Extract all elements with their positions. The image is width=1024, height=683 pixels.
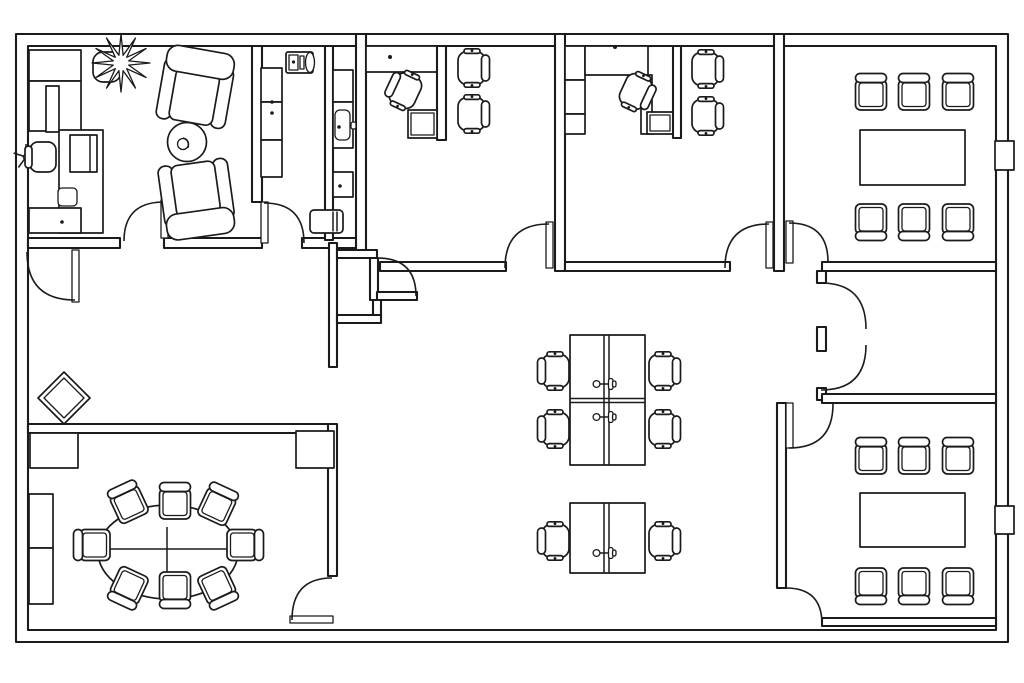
wall-office2-bottom <box>565 262 730 271</box>
reception-counter <box>46 86 59 132</box>
door-vestibule-upper <box>821 283 866 329</box>
meeting-chair <box>943 568 974 605</box>
wall-office1-office2-divider <box>555 34 565 271</box>
door-meeting-br-bottom <box>786 588 822 624</box>
room-kitchenette <box>261 52 356 233</box>
wall-core-stub-h2 <box>377 292 417 300</box>
task-chair <box>649 352 681 390</box>
task-chair <box>649 410 681 448</box>
meeting-table <box>860 493 965 547</box>
wall-office2-meeting-divider <box>774 34 784 271</box>
cabinet <box>296 431 334 468</box>
wall-office1-left <box>356 34 366 258</box>
cabinet <box>565 80 585 114</box>
meeting-chair <box>899 74 930 111</box>
task-chair <box>538 410 570 448</box>
meeting-chair <box>899 204 930 241</box>
wall-core-vertical <box>329 243 337 367</box>
conference-chair <box>74 530 111 561</box>
cabinet <box>29 548 53 604</box>
conference-chair <box>160 572 191 609</box>
wall-vestibule-stub-mid <box>817 327 826 351</box>
meeting-chair <box>856 568 887 605</box>
base-cabinet <box>333 172 353 197</box>
cabinet <box>29 494 53 548</box>
wall-meeting-tr-bottom <box>822 262 996 271</box>
wall-niche <box>995 506 1014 534</box>
cabinet <box>30 433 78 468</box>
lounge-armchair <box>155 43 237 129</box>
meeting-chair <box>856 204 887 241</box>
visitor-chair <box>692 50 724 88</box>
meeting-chair <box>943 74 974 111</box>
meeting-chair <box>856 438 887 475</box>
visitor-chair <box>458 95 490 133</box>
cabinet <box>29 208 81 233</box>
door-meeting-tr <box>786 221 828 263</box>
cabinet <box>565 114 585 134</box>
room-conference-bottom-left <box>29 431 334 611</box>
wall-cabinet <box>261 140 282 177</box>
desk-top <box>585 46 648 75</box>
door-office1 <box>505 222 553 268</box>
door-kitchen <box>261 202 304 243</box>
door-meeting-br-top <box>786 403 833 448</box>
office-partition <box>673 46 681 138</box>
wall-meeting-br-top <box>822 394 996 403</box>
task-chair <box>538 522 570 560</box>
cabinet <box>29 50 81 81</box>
task-chair <box>538 352 570 390</box>
built-in-counter <box>366 46 437 72</box>
floor-plan-page: Office floor plan <box>0 0 1024 683</box>
desk-return <box>647 112 673 134</box>
wall-cabinet <box>261 102 282 140</box>
wall-reception-bottom-left <box>28 238 120 248</box>
desk-item <box>58 188 77 206</box>
wall-conference-bl-top <box>28 424 336 433</box>
conference-chair <box>160 483 191 520</box>
diamond-element <box>38 372 90 424</box>
room-meeting-bottom-right <box>856 438 1015 605</box>
wall-vestibule-stub-top <box>817 271 826 283</box>
desk-return <box>408 110 437 138</box>
floor-plan-drawing <box>0 0 1024 683</box>
wall-meeting-br-bottom <box>822 618 996 626</box>
cabinet <box>565 46 585 80</box>
door-conference-bl <box>290 578 333 623</box>
wall-niche <box>995 141 1014 170</box>
meeting-chair <box>943 438 974 475</box>
meeting-chair <box>899 568 930 605</box>
visitor-chair <box>458 49 490 87</box>
waste-bin <box>310 210 343 233</box>
door-vestibule-lower <box>821 345 866 390</box>
coffee-machine <box>286 52 315 73</box>
wall-open-area-right <box>777 403 786 588</box>
door-office2 <box>725 222 773 268</box>
wall-office1-bottom <box>380 262 506 271</box>
conference-chair <box>227 530 264 561</box>
task-chair <box>649 522 681 560</box>
meeting-chair <box>856 74 887 111</box>
meeting-chair <box>943 204 974 241</box>
wall-core-stub-h1 <box>337 250 377 258</box>
room-private-office-2 <box>565 45 724 138</box>
room-reception-office <box>14 34 237 242</box>
wall-cabinet <box>261 68 282 102</box>
door-reception <box>124 200 168 241</box>
meeting-table <box>860 130 965 185</box>
room-meeting-top-right <box>856 74 1015 241</box>
office-partition <box>437 46 446 140</box>
desk-monitor <box>70 135 97 172</box>
round-side-table <box>168 123 207 162</box>
wall-core-stub-h3 <box>337 315 381 323</box>
countertop <box>333 70 353 102</box>
sink-counter <box>333 102 356 148</box>
door-open-area-left <box>27 250 79 302</box>
room-private-office-1 <box>366 46 490 140</box>
quad-desk-cluster <box>538 335 681 465</box>
lounge-armchair <box>157 157 237 241</box>
meeting-chair <box>899 438 930 475</box>
visitor-chair <box>692 97 724 135</box>
double-desk-pod <box>538 503 681 573</box>
